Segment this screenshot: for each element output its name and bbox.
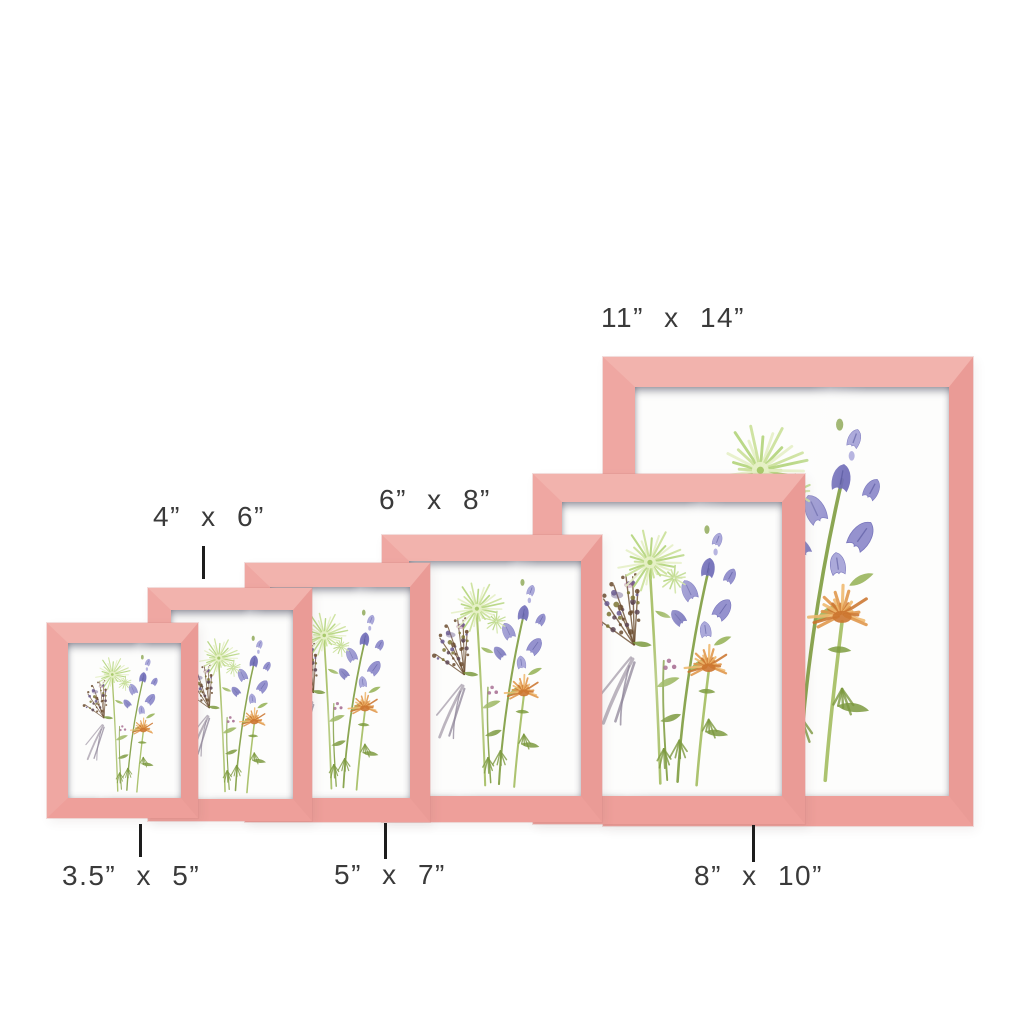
size-label-5x7: 5” x 7” [334, 861, 446, 889]
size-tick-5x7 [384, 823, 387, 859]
frame-mat [68, 643, 181, 798]
size-tick-8x10 [752, 825, 755, 862]
size-label-4x6: 4” x 6” [153, 503, 265, 531]
size-label-11x14: 11” x 14” [601, 304, 745, 332]
size-label-6x8: 6” x 8” [379, 486, 491, 514]
frame-mat [409, 561, 581, 796]
frame-3.5x5 [47, 623, 198, 818]
watercolor-bouquet [71, 649, 177, 795]
size-label-8x10: 8” x 10” [694, 862, 823, 890]
size-tick-4x6 [202, 546, 205, 579]
size-label-3.5x5: 3.5” x 5” [62, 862, 200, 890]
watercolor-bouquet [414, 570, 576, 791]
size-tick-3.5x5 [139, 824, 142, 857]
frame-size-chart: 3.5” x 5” 4” x 6” 5” x 7” 6” x 8” 8” x 1… [0, 0, 1024, 1024]
